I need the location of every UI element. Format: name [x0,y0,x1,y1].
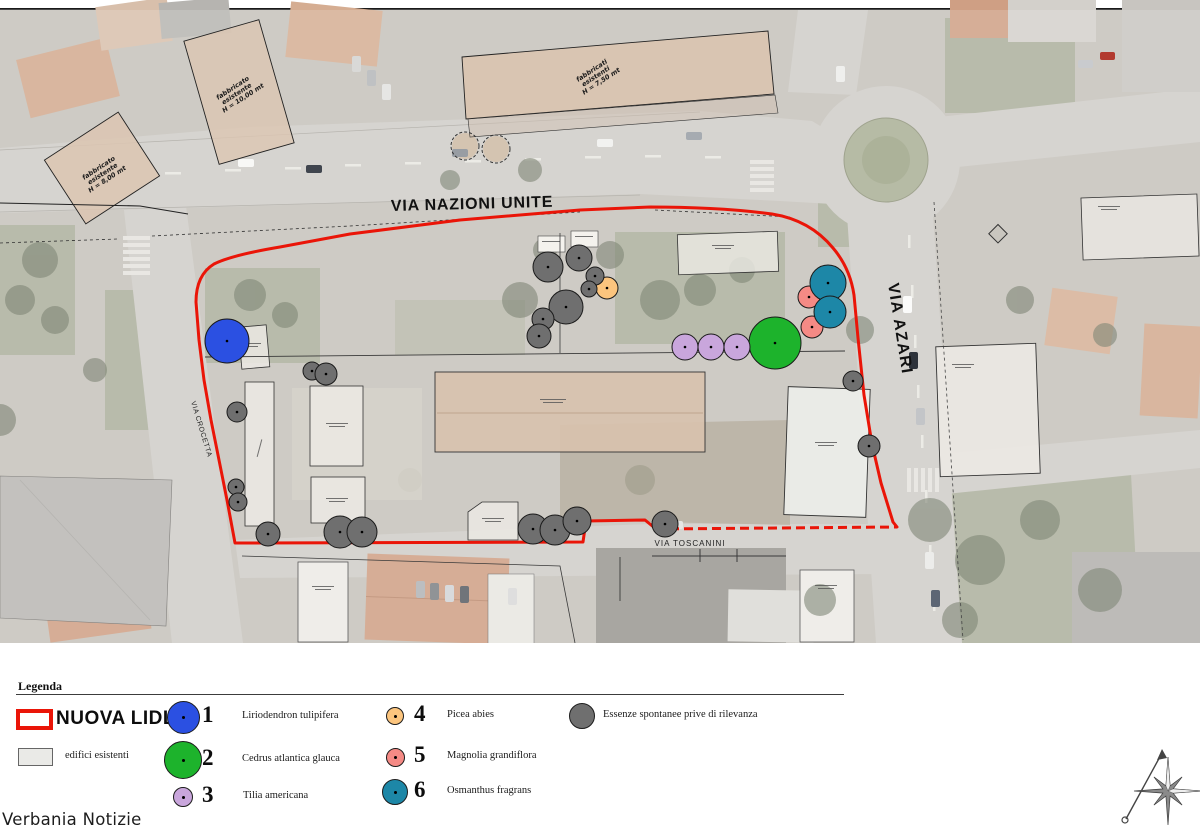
tree-marker-spontanee [229,493,247,511]
legend-name-tilia: Tilia americana [243,790,308,801]
tree-marker-spontanee [256,522,280,546]
tree-marker-spontanee [566,245,592,271]
tree-marker-tilia [672,334,698,360]
legend-num-2: 2 [202,745,214,771]
compass-needle [1126,753,1162,819]
tree-marker-tilia [698,334,724,360]
label-box [571,231,598,247]
center-dot [394,756,397,759]
legend-swatch-osmanthus [382,779,408,805]
center-dot [182,716,185,719]
watermark: Verbania Notizie [2,810,142,829]
legend-name-magnolia: Magnolia grandiflora [447,750,537,761]
street-label-via-toscanini: VIA TOSCANINI [655,539,726,548]
tree-marker-spontanee [652,511,678,537]
tree-marker-spontanee [581,281,597,297]
building-outline [1081,194,1199,260]
legend: Legenda NUOVA LIDL edifici esistenti 1 L… [0,679,1200,829]
compass-rose [1116,745,1200,830]
legend-name-osmanthus: Osmanthus fragrans [447,785,531,796]
legend-swatch-tilia [173,787,193,807]
site-boundary-dashed [656,527,897,529]
site-plan-page: VIA NAZIONI UNITE VIA AZARI VIA TOSCANIN… [0,0,1200,833]
building-outline [784,387,870,518]
site-name-label: NUOVA LIDL [56,708,175,730]
legend-swatch-spontanee [569,703,595,729]
tree-marker-osmanthus [814,296,846,328]
aerial-map: VIA NAZIONI UNITE VIA AZARI VIA TOSCANIN… [0,0,1200,643]
compass-needle-arrowhead [1157,749,1167,760]
legend-swatch-picea [386,707,404,725]
legend-name-spontanee: Essenze spontanee prive di rilevanza [603,709,758,720]
legend-swatch-cedrus [164,741,202,779]
building-outline-central [435,372,705,452]
legend-swatch-liriodendron [167,701,200,734]
compass-needle-tail [1122,817,1128,823]
center-dot [182,759,185,762]
tree-marker-spontanee [228,479,244,495]
label-box [538,236,565,252]
legend-title: Legenda [18,679,62,694]
tree-marker-spontanee [527,324,551,348]
building-outline [677,231,778,274]
building-outline [245,382,274,526]
site-boundary-swatch [16,709,53,730]
compass-star-highlight [1168,789,1200,793]
legend-num-6: 6 [414,777,426,803]
tree-marker-osmanthus [810,265,846,301]
legend-num-1: 1 [202,702,214,728]
center-dot [182,796,185,799]
legend-name-liriodendron: Liriodendron tulipifera [242,710,339,721]
legend-rule [16,694,844,695]
existing-buildings-label: edifici esistenti [65,750,129,761]
building-outline [936,343,1040,476]
tree-marker-spontanee [347,517,377,547]
legend-swatch-magnolia [386,748,405,767]
tree-marker-spontanee [563,507,591,535]
center-dot [394,791,397,794]
center-dot [394,715,397,718]
tree-marker-liriodendron [205,319,249,363]
tree-marker-spontanee [843,371,863,391]
tree-marker-tilia [724,334,750,360]
tree-marker-spontanee [858,435,880,457]
tree-marker-spontanee [227,402,247,422]
legend-num-5: 5 [414,742,426,768]
legend-name-picea: Picea abies [447,709,494,720]
legend-num-3: 3 [202,782,214,808]
legend-num-4: 4 [414,701,426,727]
tree-marker-spontanee [315,363,337,385]
legend-name-cedrus: Cedrus atlantica glauca [242,753,340,764]
tree-marker-spontanee [533,252,563,282]
existing-buildings-swatch [18,748,53,766]
tree-marker-cedrus [749,317,801,369]
